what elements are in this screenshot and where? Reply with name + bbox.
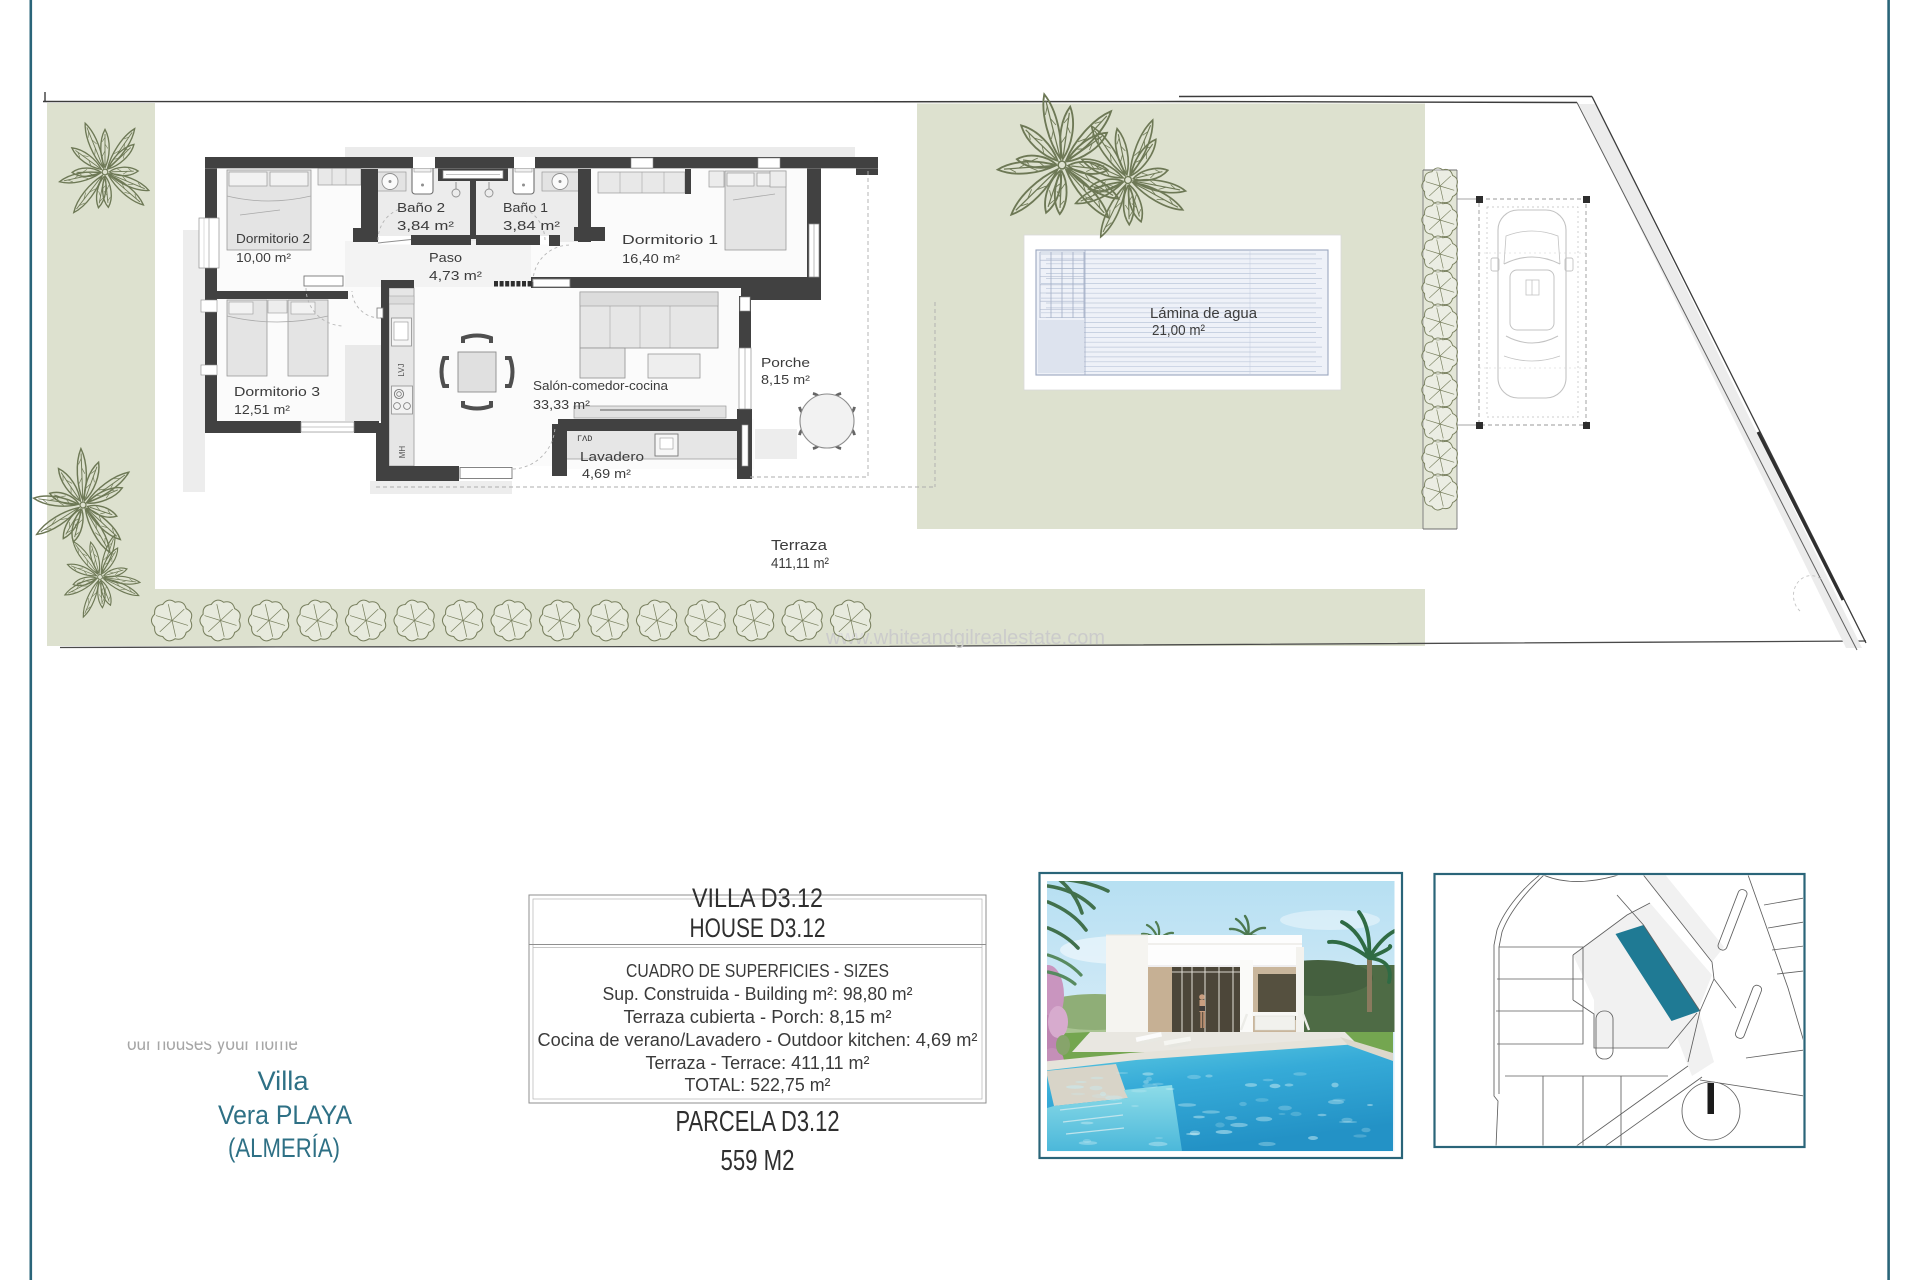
svg-text:411,11 m²: 411,11 m² (771, 555, 829, 572)
svg-text:Cocina de verano/Lavadero - O: Cocina de verano/Lavadero - Outdoor kitc… (538, 1029, 978, 1050)
svg-text:16,40 m²: 16,40 m² (622, 251, 681, 266)
svg-text:Lavadero: Lavadero (580, 449, 644, 464)
svg-text:8,15 m²: 8,15 m² (761, 372, 811, 387)
svg-text:12,51 m²: 12,51 m² (234, 402, 291, 417)
svg-text:3,84 m²: 3,84 m² (397, 218, 455, 233)
svg-text:ΓΛD: ΓΛD (577, 434, 592, 444)
svg-text:MH: MH (398, 446, 407, 459)
svg-text:Dormitorio 2: Dormitorio 2 (236, 231, 310, 246)
svg-text:21,00 m²: 21,00 m² (1152, 322, 1205, 339)
svg-text:Porche: Porche (761, 355, 810, 370)
svg-text:Sup. Construida - Building m²: Sup. Construida - Building m²: 98,80 m² (603, 983, 913, 1004)
svg-text:Vera PLAYA: Vera PLAYA (218, 1100, 352, 1130)
svg-text:Villa: Villa (258, 1066, 310, 1096)
svg-text:TOTAL: 522,75 m²: TOTAL: 522,75 m² (685, 1074, 831, 1095)
svg-text:Baño 1: Baño 1 (503, 200, 548, 215)
svg-text:HOUSE D3.12: HOUSE D3.12 (690, 913, 826, 943)
svg-text:33,33 m²: 33,33 m² (533, 397, 591, 412)
svg-text:VILLA D3.12: VILLA D3.12 (692, 883, 823, 913)
svg-text:4,69 m²: 4,69 m² (582, 466, 632, 481)
svg-text:Dormitorio 3: Dormitorio 3 (234, 384, 320, 399)
svg-text:Terraza: Terraza (771, 537, 828, 554)
svg-text:3,84 m²: 3,84 m² (503, 218, 561, 233)
svg-text:Baño 2: Baño 2 (397, 200, 445, 215)
svg-text:PARCELA D3.12: PARCELA D3.12 (676, 1106, 840, 1138)
svg-text:Salón-comedor-cocina: Salón-comedor-cocina (533, 378, 669, 393)
svg-text:4,73 m²: 4,73 m² (429, 268, 483, 283)
svg-text:Paso: Paso (429, 250, 462, 265)
svg-text:Dormitorio 1: Dormitorio 1 (622, 232, 718, 247)
svg-text:CUADRO DE SUPERFICIES - SIZES: CUADRO DE SUPERFICIES - SIZES (626, 960, 889, 981)
svg-text:559 M2: 559 M2 (721, 1145, 795, 1177)
svg-text:Terraza cubierta - Porch: 8,1: Terraza cubierta - Porch: 8,15 m² (624, 1006, 892, 1027)
svg-text:LVJ: LVJ (397, 363, 406, 376)
svg-text:(ALMERÍA): (ALMERÍA) (228, 1133, 340, 1163)
svg-text:Lámina de agua: Lámina de agua (1150, 305, 1258, 322)
svg-text:Terraza - Terrace: 411,11 m²: Terraza - Terrace: 411,11 m² (646, 1052, 870, 1073)
svg-text:10,00 m²: 10,00 m² (236, 250, 292, 265)
